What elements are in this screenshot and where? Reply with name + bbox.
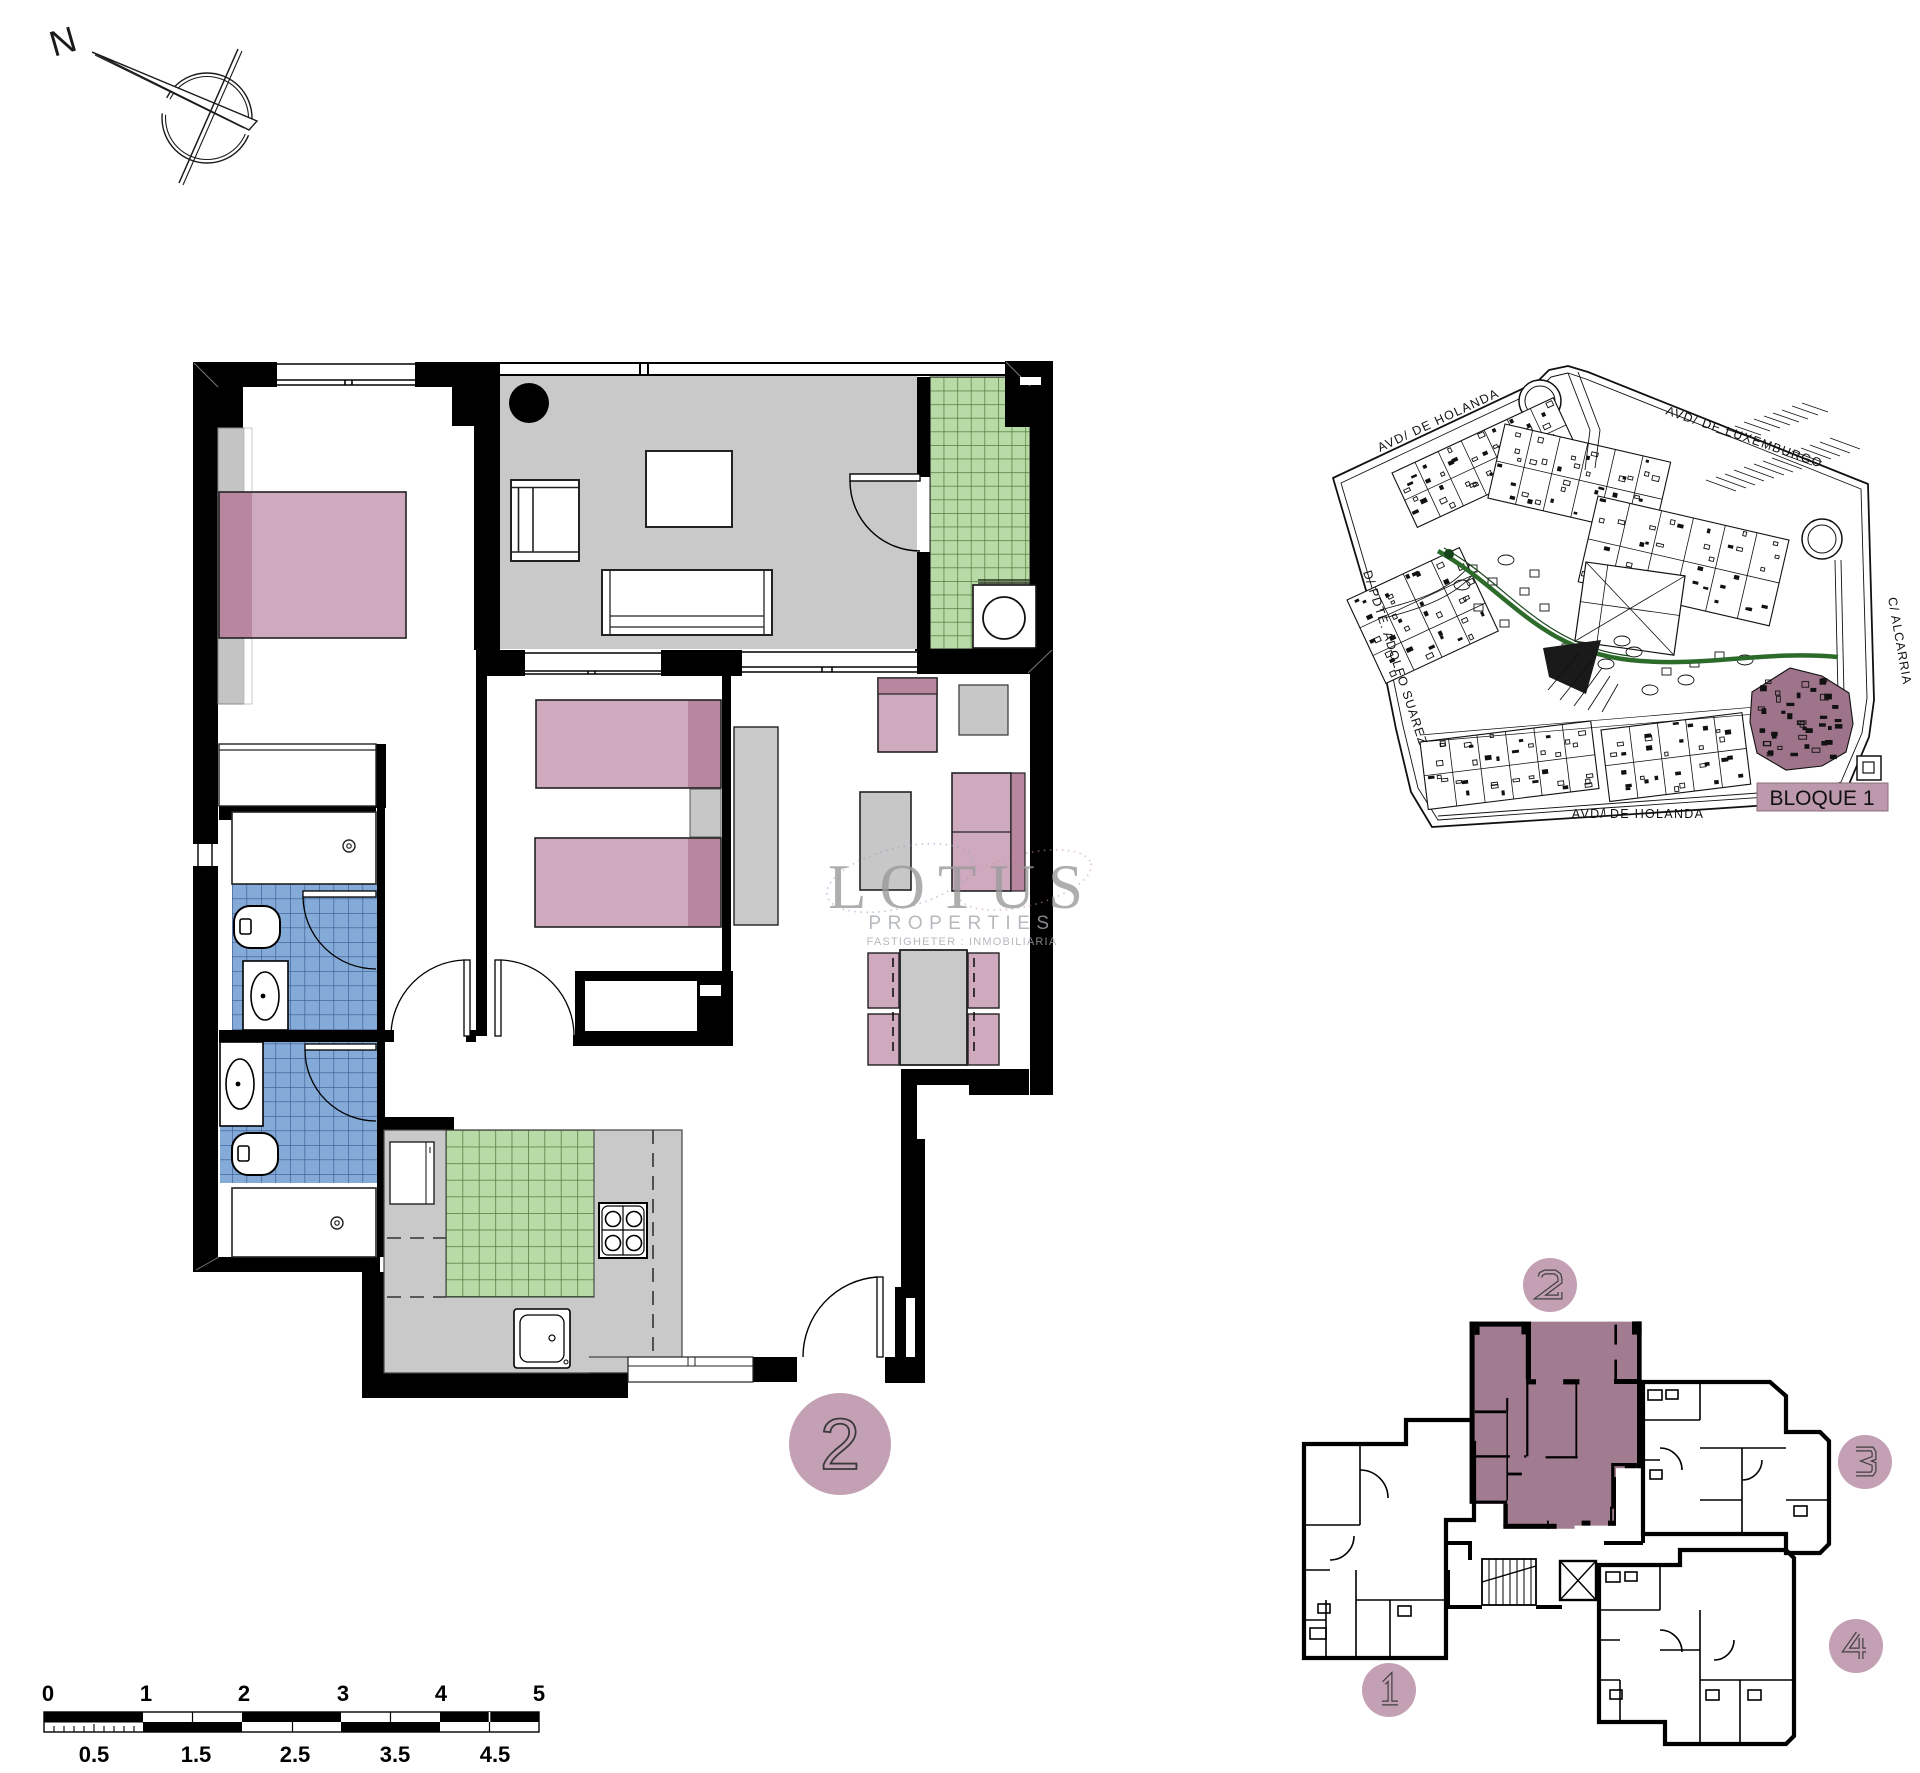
svg-text:2: 2 (238, 1681, 250, 1706)
svg-text:4: 4 (435, 1681, 448, 1706)
svg-text:FASTIGHETER : INMOBILIARIA: FASTIGHETER : INMOBILIARIA (867, 936, 1058, 948)
svg-text:AVD/ DE HOLANDA: AVD/ DE HOLANDA (1572, 807, 1705, 821)
svg-text:2: 2 (820, 1405, 860, 1485)
svg-text:0.5: 0.5 (79, 1742, 110, 1767)
svg-text:N: N (45, 18, 81, 65)
svg-text:1.5: 1.5 (181, 1742, 212, 1767)
svg-text:2.5: 2.5 (280, 1742, 311, 1767)
svg-text:C/ ALCARRIA: C/ ALCARRIA (1885, 596, 1914, 686)
svg-text:4.5: 4.5 (480, 1742, 511, 1767)
svg-text:PROPERTIES: PROPERTIES (868, 913, 1055, 934)
svg-text:1: 1 (140, 1681, 152, 1706)
svg-text:3.5: 3.5 (380, 1742, 411, 1767)
svg-text:LOTUS: LOTUS (828, 852, 1096, 922)
svg-text:BLOQUE 1: BLOQUE 1 (1769, 787, 1874, 810)
svg-text:AVD/ DE LUXEMBURGO: AVD/ DE LUXEMBURGO (1664, 404, 1824, 471)
svg-text:3: 3 (337, 1681, 349, 1706)
svg-text:0: 0 (42, 1681, 54, 1706)
svg-text:5: 5 (533, 1681, 545, 1706)
